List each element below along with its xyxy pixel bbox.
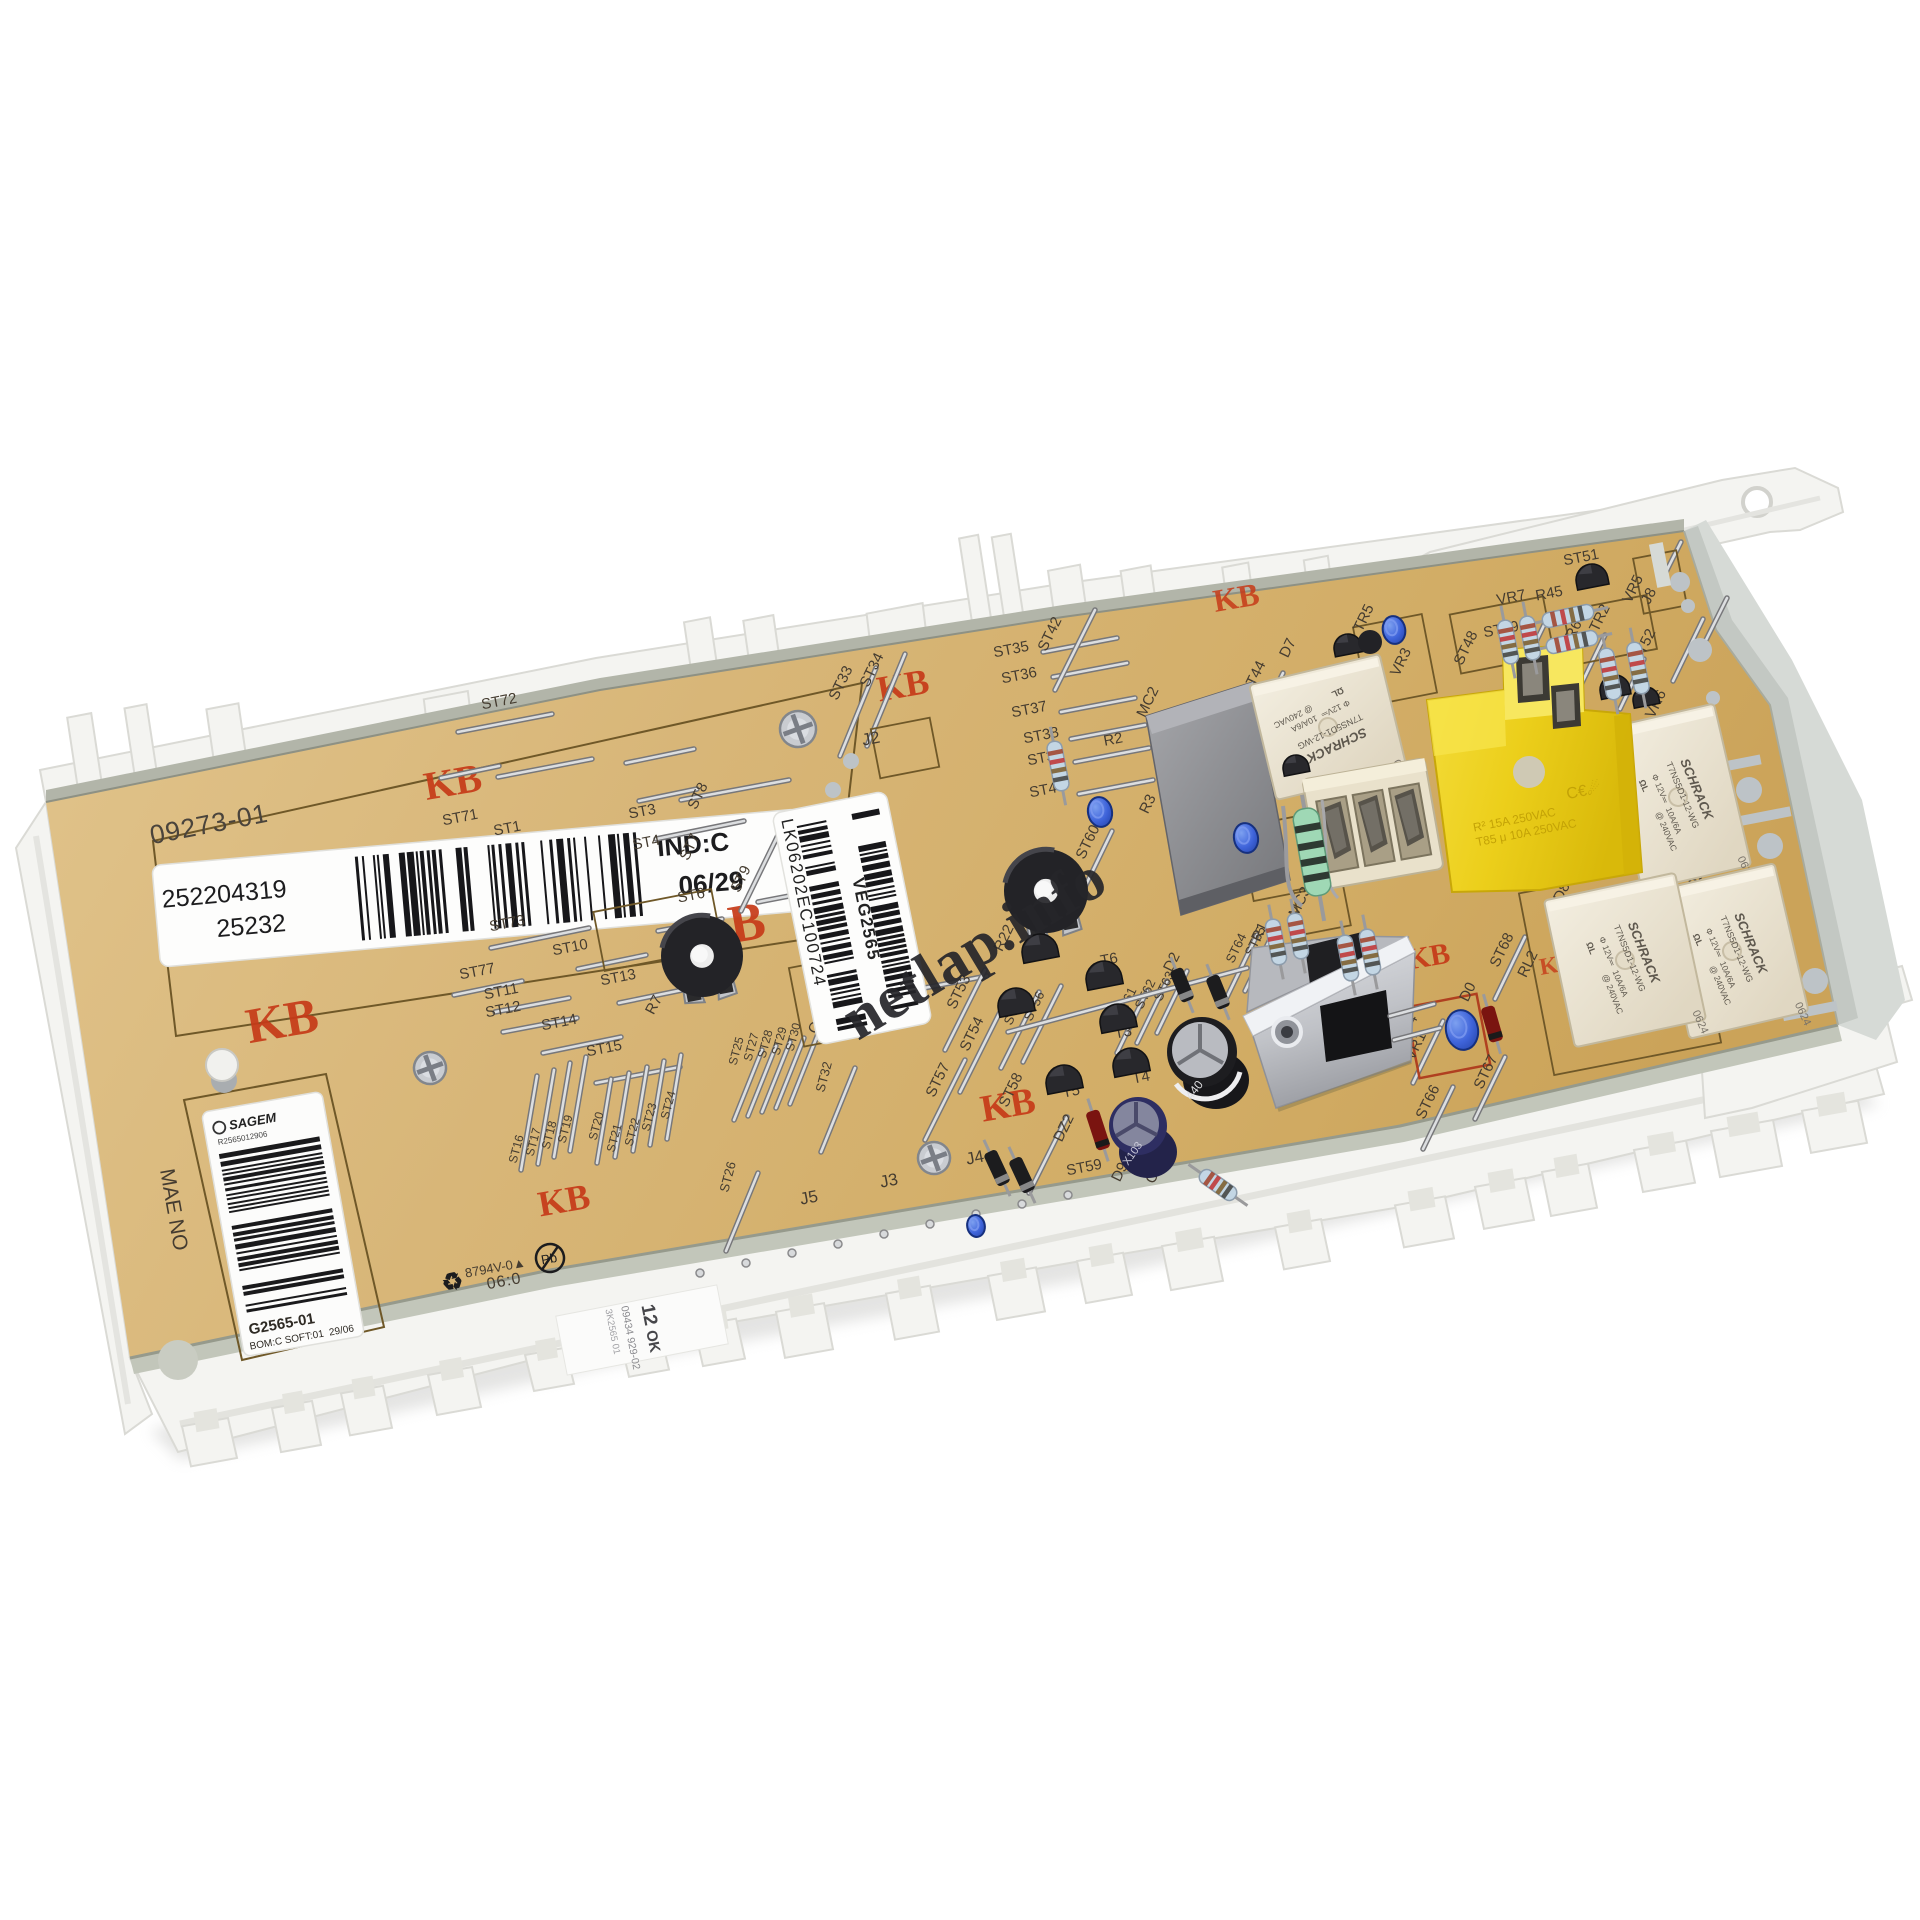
- svg-text:J5: J5: [798, 1187, 819, 1209]
- svg-text:J2: J2: [860, 728, 881, 750]
- svg-text:J3: J3: [878, 1170, 899, 1192]
- svg-text:J4: J4: [964, 1147, 985, 1169]
- svg-text:R2: R2: [1102, 729, 1124, 749]
- svg-text:12: 12: [636, 1303, 661, 1328]
